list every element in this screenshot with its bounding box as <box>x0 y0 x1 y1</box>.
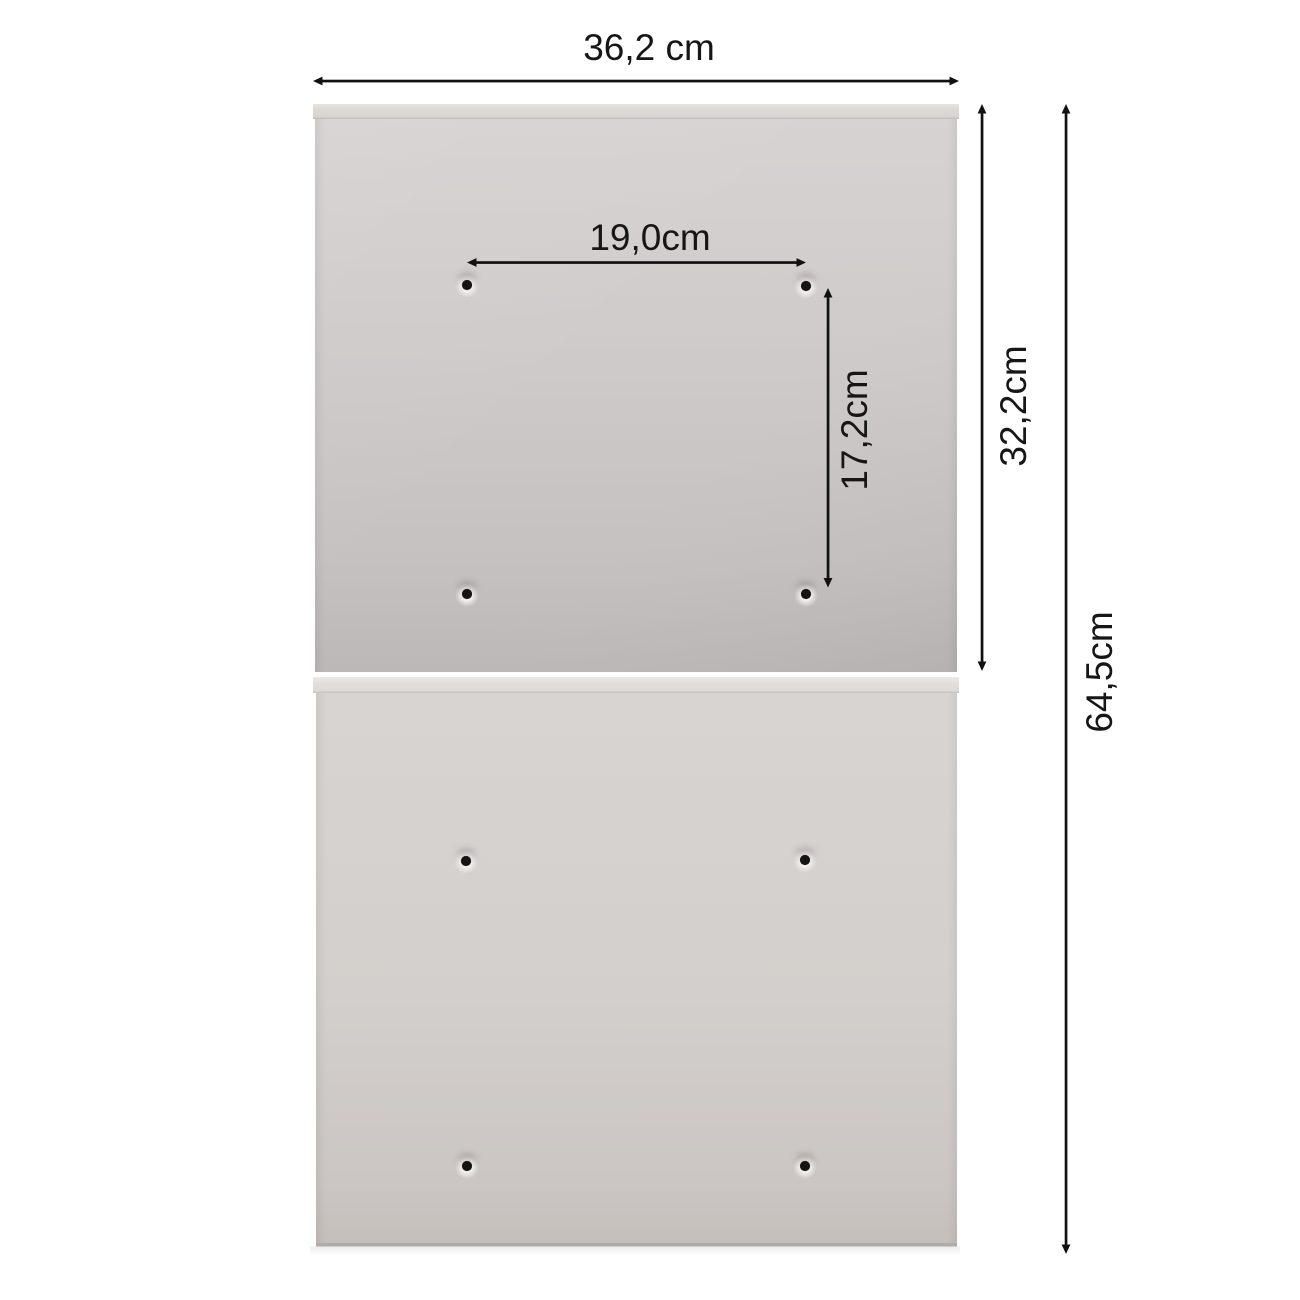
svg-text:32,2cm: 32,2cm <box>993 345 1034 466</box>
svg-text:36,2 cm: 36,2 cm <box>583 27 715 68</box>
svg-text:19,0cm: 19,0cm <box>589 217 710 258</box>
svg-text:64,5cm: 64,5cm <box>1079 611 1120 732</box>
svg-text:17,2cm: 17,2cm <box>834 369 875 490</box>
